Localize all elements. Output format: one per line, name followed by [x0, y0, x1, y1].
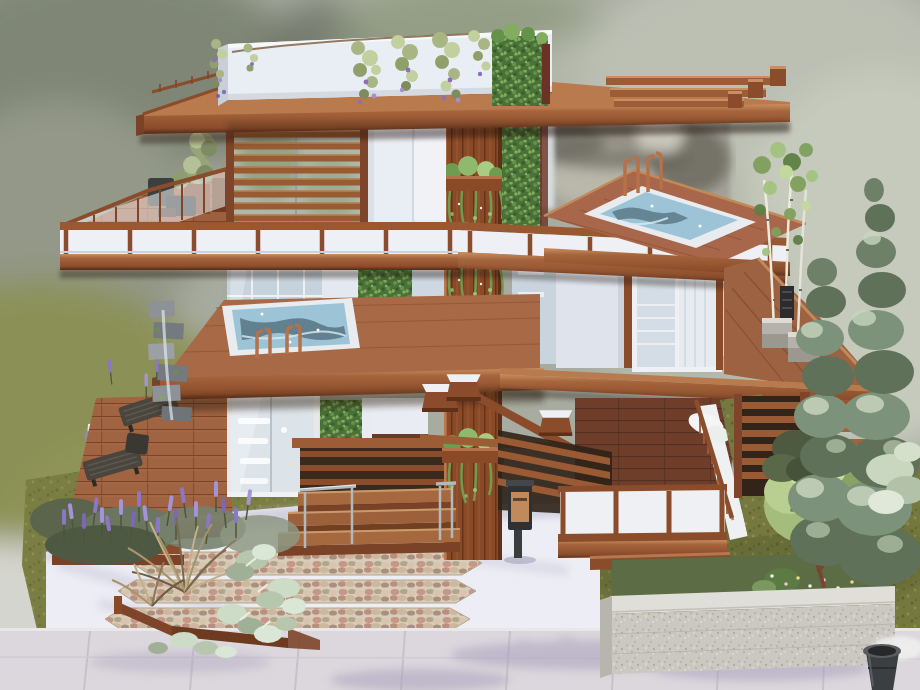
ivy-corner: [491, 24, 550, 106]
scene-render: [0, 0, 920, 690]
green-wall-3f: [502, 120, 542, 236]
porch-balustrade: [558, 484, 730, 570]
balustrade-band-left: [60, 222, 462, 278]
screenshot-canvas: [0, 0, 920, 690]
entry-steps: [278, 483, 460, 556]
